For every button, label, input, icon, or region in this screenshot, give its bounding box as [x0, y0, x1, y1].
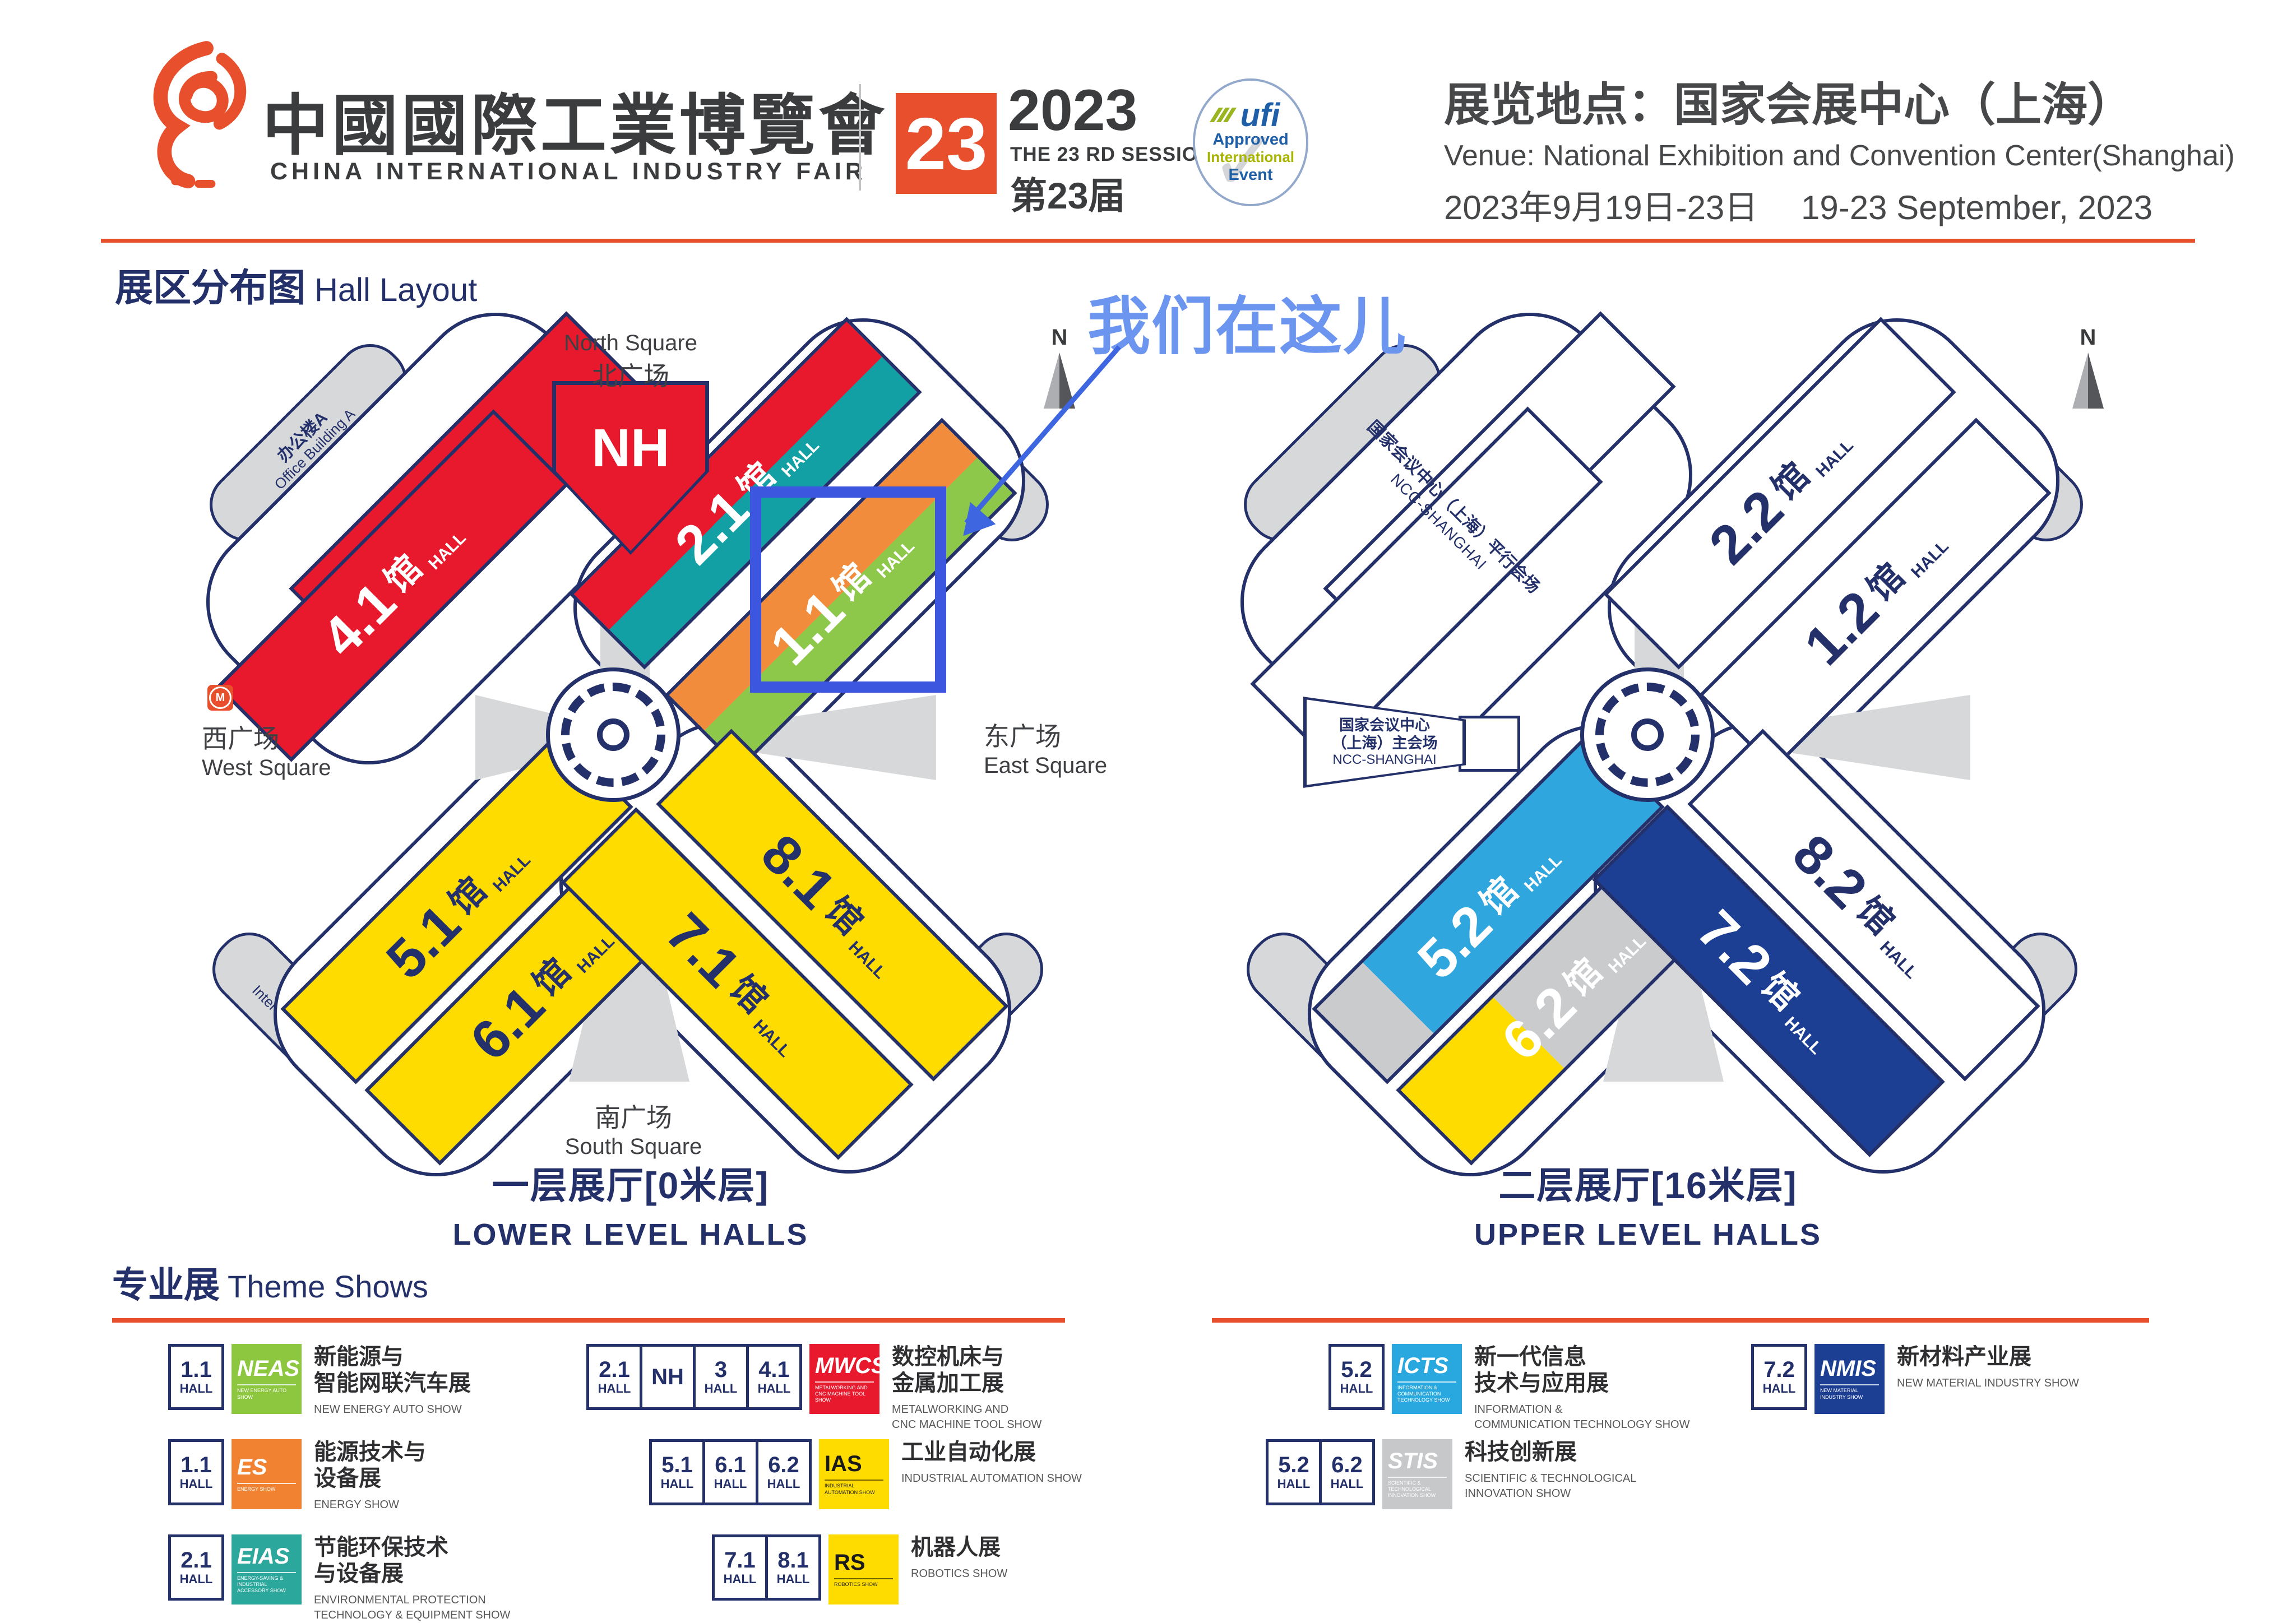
venue-line-cn: 展览地点：国家会展中心（上海）: [1444, 67, 2133, 134]
metro-icon: M: [207, 685, 233, 711]
ciif-flower-logo: [130, 40, 262, 192]
header-rule: [101, 239, 2195, 243]
hall-7-2-word: HALL: [1780, 1013, 1826, 1059]
hall-4-1-word: HALL: [425, 528, 470, 574]
compass-n-label: N: [1034, 325, 1085, 350]
brand-title-cn: 中國國際工業博覽會: [262, 72, 888, 168]
hall-2-2-word: HALL: [1812, 436, 1858, 481]
east-square-label: 东广场 East Square: [984, 716, 1107, 778]
legend-entry-rs: 7.1 HALL 8.1 HALL RS ROBOTICS SHOW 机器人展 …: [712, 1534, 1007, 1605]
south-square-label: 南广场 South Square: [521, 1097, 746, 1160]
compass-icon: [2072, 351, 2104, 409]
hall-4-1-guan: 馆: [379, 550, 428, 599]
ufi-approved: Approved: [1195, 131, 1306, 149]
icts-logo: ICTS INFORMATION & COMMUNICATION TECHNOL…: [1392, 1344, 1462, 1414]
legend-heading-en: Theme Shows: [228, 1269, 428, 1304]
hall-box: 5.2 HALL: [1266, 1439, 1322, 1505]
legend-entry-es: 1.1 HALL ES ENERGY SHOW 能源技术与 设备展 ENERGY…: [168, 1439, 426, 1513]
hall-box: 6.2 HALL: [1319, 1439, 1375, 1505]
hall-nh-label: NH: [592, 418, 670, 479]
east-square-en: East Square: [984, 753, 1107, 778]
hall-box: 5.1 HALL: [649, 1439, 705, 1505]
upper-west-corridor: [1459, 716, 1520, 772]
ncc-main-cn2: （上海）主会场: [1332, 734, 1438, 752]
hall-box: 4.1 HALL: [746, 1344, 802, 1410]
section-title-cn: 展区分布图: [115, 267, 305, 309]
legend-heading: 专业展Theme Shows: [112, 1256, 428, 1308]
hall-2-1-word: HALL: [778, 436, 823, 481]
hall-5-1-guan: 馆: [443, 872, 493, 921]
nmis-logo: NMIS NEW MATERIAL INDUSTRY SHOW: [1814, 1344, 1885, 1414]
session-label-en: THE 23 RD SESSION: [1010, 143, 1212, 166]
compass-n-label: N: [2063, 325, 2113, 350]
hall-5-2-guan: 馆: [1475, 872, 1524, 921]
hall-6-2-guan: 馆: [1559, 953, 1608, 1003]
session-label-cn: 第23届: [1010, 166, 1125, 220]
legend-entry-stis: 5.2 HALL 6.2 HALL STIS SCIENTIFIC & TECH…: [1266, 1439, 1636, 1509]
stis-logo: STIS SCIENTIFIC & TECHNOLOGICAL INNOVATI…: [1382, 1439, 1452, 1509]
hall-box: NH: [640, 1344, 696, 1410]
north-square-cn: 北广场: [519, 356, 743, 393]
legend-text: 新材料产业展 NEW MATERIAL INDUSTRY SHOW: [1897, 1344, 2079, 1391]
session-badge: 23: [896, 93, 997, 194]
hall-box: 2.1 HALL: [168, 1534, 224, 1601]
legend-text: 机器人展 ROBOTICS SHOW: [911, 1534, 1007, 1582]
legend-text: 数控机床与 金属加工展 METALWORKING AND CNC MACHINE…: [892, 1344, 1041, 1432]
hall-1-1-highlight-box: [750, 486, 946, 693]
hall-box: 6.2 HALL: [756, 1439, 812, 1505]
ufi-badge: ✓ ufi Approved International Event: [1193, 78, 1308, 206]
legend-text: 能源技术与 设备展 ENERGY SHOW: [314, 1439, 426, 1513]
legend-entry-nmis: 7.2 HALL NMIS NEW MATERIAL INDUSTRY SHOW…: [1751, 1344, 2079, 1414]
hall-2-2-guan: 馆: [1766, 457, 1816, 507]
south-square-cn: 南广场: [521, 1097, 746, 1134]
hall-5-1-word: HALL: [489, 851, 535, 896]
es-logo: ES ENERGY SHOW: [232, 1439, 302, 1509]
neas-logo: NEAS NEW ENERGY AUTO SHOW: [232, 1344, 302, 1414]
hall-6-2-word: HALL: [1605, 932, 1650, 977]
legend-rule-right: [1212, 1318, 2149, 1323]
year-label: 2023: [1008, 77, 1137, 144]
legend-text: 新一代信息 技术与应用展 INFORMATION & COMMUNICATION…: [1474, 1344, 1689, 1432]
central-hub-upper: [1580, 667, 1715, 802]
compass-upper: N: [2063, 325, 2113, 409]
hall-box: 8.1 HALL: [765, 1534, 821, 1601]
section-title-en: Hall Layout: [314, 272, 477, 308]
north-square-label: North Square 北广场: [519, 331, 743, 393]
legend-text: 工业自动化展 INDUSTRIAL AUTOMATION SHOW: [901, 1439, 1082, 1486]
legend-entry-eias: 2.1 HALL EIAS ENERGY-SAVING & INDUSTRIAL…: [168, 1534, 510, 1623]
hall-box: 5.2 HALL: [1328, 1344, 1385, 1410]
hall-8-1-word: HALL: [844, 938, 890, 983]
hall-1-2-guan: 馆: [1862, 558, 1911, 608]
legend-text: 科技创新展 SCIENTIFIC & TECHNOLOGICAL INNOVAT…: [1465, 1439, 1636, 1501]
legend-text: 节能环保技术 与设备展 ENVIRONMENTAL PROTECTION TEC…: [314, 1534, 510, 1623]
west-square-label: 西广场 West Square: [202, 718, 331, 781]
hall-7-2-guan: 馆: [1755, 967, 1804, 1017]
legend-rule-left: [112, 1318, 1065, 1323]
legend-heading-cn: 专业展: [112, 1265, 220, 1305]
ciif-hall-layout-poster: 中國國際工業博覽會 CHINA INTERNATIONAL INDUSTRY F…: [0, 0, 2296, 1623]
ufi-international: International: [1195, 149, 1306, 166]
legend-entry-neas: 1.1 HALL NEAS NEW ENERGY AUTO SHOW 新能源与 …: [168, 1344, 471, 1417]
venue-line-en: Venue: National Exhibition and Conventio…: [1444, 139, 2235, 173]
legend-entry-ias: 5.1 HALL 6.1 HALL 6.2 HALL IAS INDUSTRIA…: [649, 1439, 1082, 1509]
mwcs-logo: MWCS METALWORKING AND CNC MACHINE TOOL S…: [809, 1344, 879, 1414]
hall-box: 1.1 HALL: [168, 1439, 224, 1505]
upper-caption-cn: 二层展厅[16米层]: [1396, 1156, 1900, 1209]
legend-text: 新能源与 智能网联汽车展 NEW ENERGY AUTO SHOW: [314, 1344, 471, 1417]
brand-title-en: CHINA INTERNATIONAL INDUSTRY FAIR: [270, 158, 867, 186]
hall-7-1-guan: 馆: [724, 970, 773, 1019]
upper-map-caption: 二层展厅[16米层] UPPER LEVEL HALLS: [1396, 1156, 1900, 1252]
ufi-event: Event: [1195, 166, 1306, 184]
hall-1-2-word: HALL: [1908, 537, 1953, 582]
upper-caption-en: UPPER LEVEL HALLS: [1396, 1217, 1900, 1252]
west-square-en: West Square: [202, 755, 331, 781]
we-are-here-label: 我们在这儿: [1087, 276, 1407, 367]
hall-box: 6.1 HALL: [702, 1439, 758, 1505]
lower-caption-cn: 一层展厅[0米层]: [378, 1156, 883, 1209]
hall-5-2-word: HALL: [1521, 851, 1566, 896]
ias-logo: IAS INDUSTRIAL AUTOMATION SHOW: [819, 1439, 889, 1509]
date-line: 2023年9月19日-23日 19-23 September, 2023: [1444, 180, 2152, 229]
hall-box: 1.1 HALL: [168, 1344, 224, 1410]
header-divider: [859, 84, 861, 191]
hall-6-1-guan: 馆: [527, 953, 577, 1003]
north-square-en: North Square: [519, 331, 743, 356]
west-square-cn: 西广场: [202, 718, 331, 755]
legend-entry-mwcs: 2.1 HALL NH 3 HALL 4.1 HALL MWCS METALWO…: [586, 1344, 1041, 1432]
lower-map-caption: 一层展厅[0米层] LOWER LEVEL HALLS: [378, 1156, 883, 1252]
hall-8-2-guan: 馆: [1850, 892, 1900, 941]
hall-box: 3 HALL: [693, 1344, 749, 1410]
east-square-cn: 东广场: [984, 716, 1107, 753]
section-title: 展区分布图Hall Layout: [115, 257, 477, 312]
rs-logo: RS ROBOTICS SHOW: [828, 1534, 899, 1605]
hall-7-1-word: HALL: [749, 1016, 794, 1061]
hall-box: 2.1 HALL: [586, 1344, 642, 1410]
ncc-main-cn1: 国家会议中心: [1339, 716, 1430, 734]
central-hub-lower: [546, 667, 681, 802]
legend-entry-icts: 5.2 HALL ICTS INFORMATION & COMMUNICATIO…: [1328, 1344, 1689, 1432]
hall-8-2-word: HALL: [1876, 938, 1921, 983]
hall-6-1-word: HALL: [573, 932, 619, 977]
ncc-main-en: NCC-SHANGHAI: [1332, 752, 1436, 768]
ufi-brand: ufi: [1214, 100, 1306, 131]
hall-box: 7.2 HALL: [1751, 1344, 1807, 1410]
lower-caption-en: LOWER LEVEL HALLS: [378, 1217, 883, 1252]
eias-logo: EIAS ENERGY-SAVING & INDUSTRIAL ACCESSOR…: [232, 1534, 302, 1605]
hall-8-1-guan: 馆: [819, 892, 868, 941]
hall-box: 7.1 HALL: [712, 1534, 768, 1601]
